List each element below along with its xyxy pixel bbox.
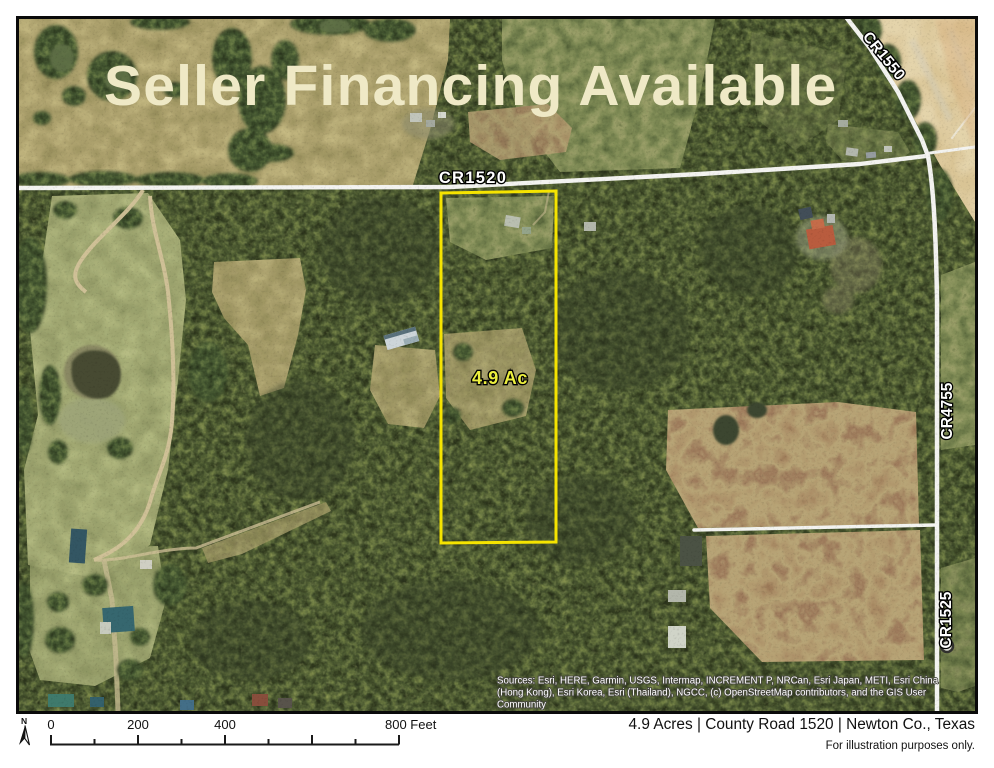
svg-text:For illustration purposes only: For illustration purposes only. <box>826 740 975 752</box>
svg-text:200: 200 <box>127 717 149 732</box>
svg-text:0: 0 <box>47 717 54 732</box>
svg-text:4.9 Ac: 4.9 Ac <box>472 368 528 388</box>
svg-text:Community: Community <box>497 700 546 711</box>
svg-text:Sources: Esri, HERE, Garmin, U: Sources: Esri, HERE, Garmin, USGS, Inter… <box>497 676 939 687</box>
svg-text:(Hong Kong), Esri Korea, Esri: (Hong Kong), Esri Korea, Esri (Thailand)… <box>497 688 927 699</box>
svg-text:CR4755: CR4755 <box>939 382 956 439</box>
svg-text:CR1520: CR1520 <box>439 169 507 187</box>
svg-text:Seller Financing Available: Seller Financing Available <box>104 54 837 118</box>
svg-text:400: 400 <box>214 717 236 732</box>
svg-text:800 Feet: 800 Feet <box>385 717 437 732</box>
svg-text:4.9 Acres | County Road 1520 |: 4.9 Acres | County Road 1520 | Newton Co… <box>629 716 976 733</box>
svg-text:N: N <box>21 716 27 726</box>
svg-text:CR1525: CR1525 <box>938 591 955 648</box>
